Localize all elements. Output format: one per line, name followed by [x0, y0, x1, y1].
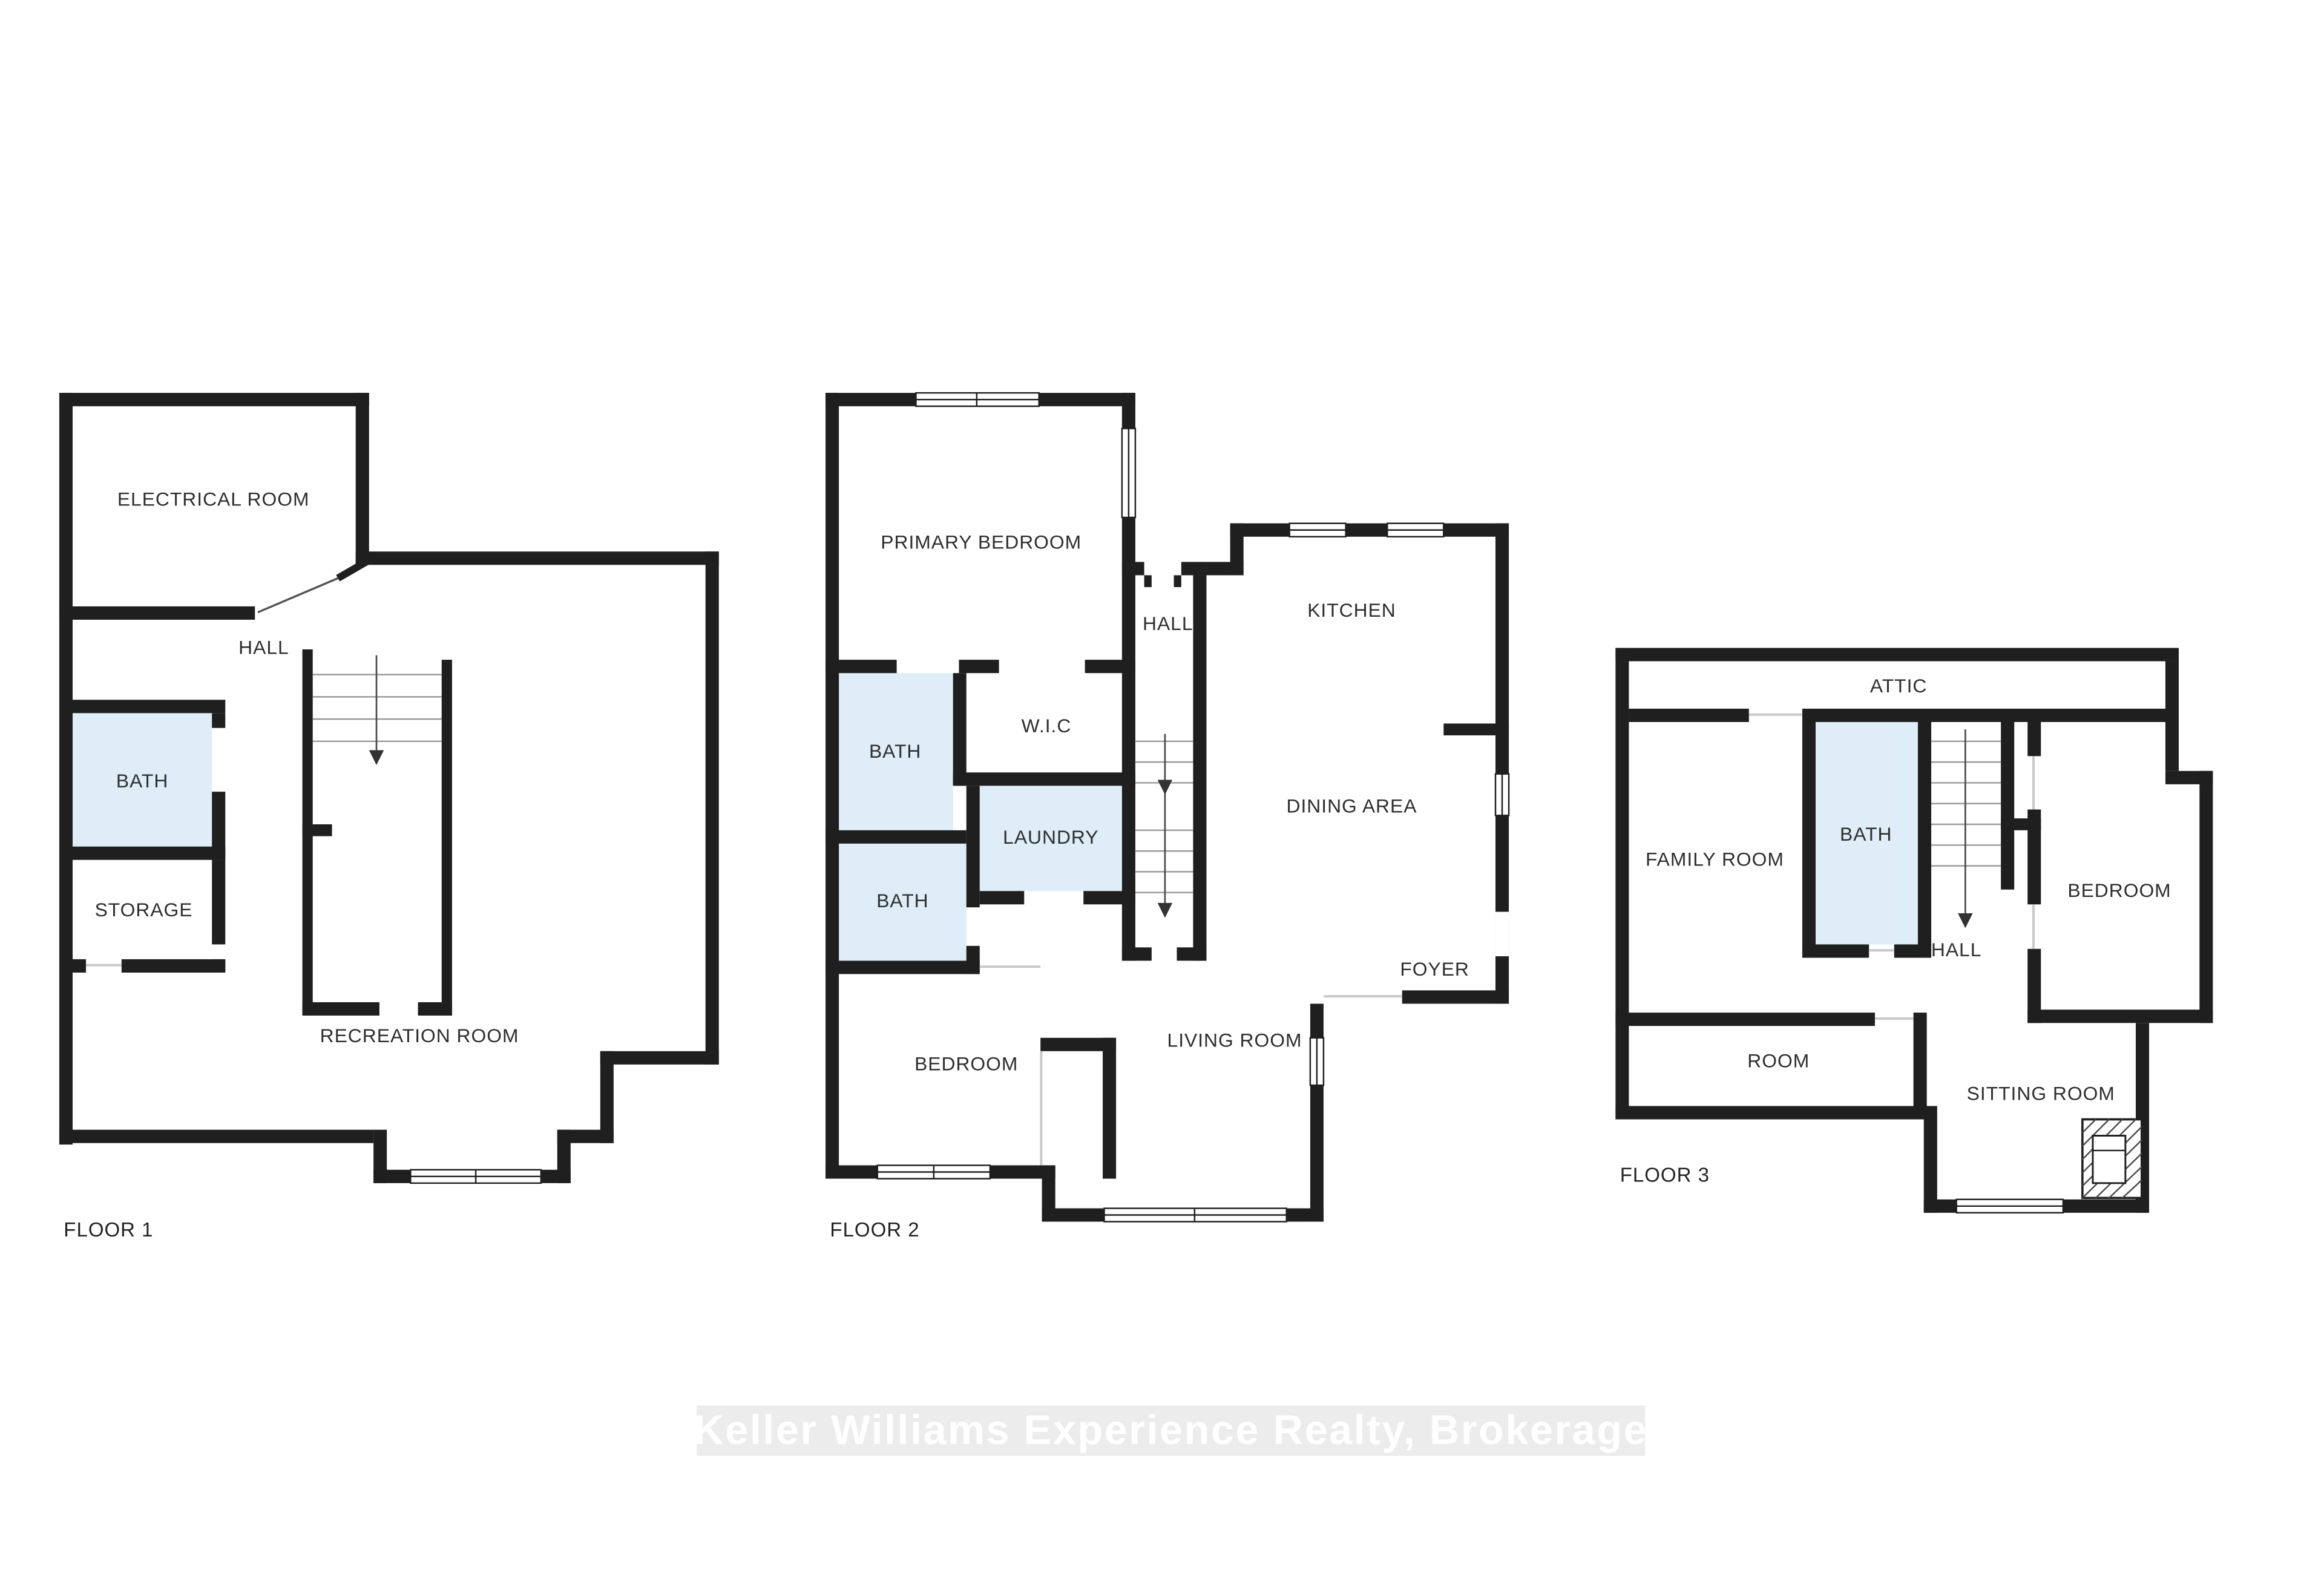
- room-label-dining: DINING AREA: [1287, 795, 1417, 816]
- room-label-electrical: ELECTRICAL ROOM: [117, 488, 310, 510]
- room-label-room: ROOM: [1747, 1050, 1810, 1072]
- room-label-bath-upper: BATH: [869, 740, 921, 762]
- floor3-label: FLOOR 3: [1620, 1164, 1710, 1186]
- fireplace: [2083, 1120, 2142, 1198]
- room-label-bedroom-f3: BEDROOM: [2067, 879, 2171, 901]
- room-label-hall-f1: HALL: [238, 636, 289, 658]
- room-label-bath-lower: BATH: [876, 890, 928, 911]
- room-label-recreation: RECREATION ROOM: [320, 1025, 519, 1046]
- room-label-family: FAMILY ROOM: [1646, 849, 1784, 870]
- room-label-bath-f3: BATH: [1840, 823, 1892, 845]
- room-label-bath-f1: BATH: [116, 770, 168, 792]
- room-label-storage: STORAGE: [95, 899, 193, 921]
- watermark-text: Keller Williams Experience Realty, Broke…: [694, 1407, 1648, 1453]
- room-label-hall-f2: HALL: [1143, 612, 1193, 634]
- room-label-laundry: LAUNDRY: [1003, 826, 1098, 848]
- floor1-label: FLOOR 1: [64, 1219, 153, 1241]
- floor2-label: FLOOR 2: [830, 1219, 919, 1241]
- room-label-primary-bedroom: PRIMARY BEDROOM: [881, 531, 1082, 553]
- floor1-bay-window: [410, 1170, 541, 1183]
- room-label-hall-f3: HALL: [1931, 939, 1982, 960]
- room-label-living: LIVING ROOM: [1167, 1029, 1302, 1051]
- room-label-kitchen: KITCHEN: [1307, 599, 1396, 621]
- room-label-attic: ATTIC: [1870, 675, 1927, 697]
- floor3-windows: [1957, 1200, 2063, 1213]
- room-label-sitting: SITTING ROOM: [1967, 1083, 2115, 1105]
- room-label-bedroom-f2: BEDROOM: [914, 1053, 1018, 1075]
- watermark: Keller Williams Experience Realty, Broke…: [694, 1405, 1648, 1456]
- floorplan-sheet: ELECTRICAL ROOM HALL BATH STORAGE RECREA…: [0, 0, 2324, 1576]
- room-label-wic: W.I.C: [1022, 715, 1072, 737]
- room-label-foyer: FOYER: [1400, 958, 1469, 980]
